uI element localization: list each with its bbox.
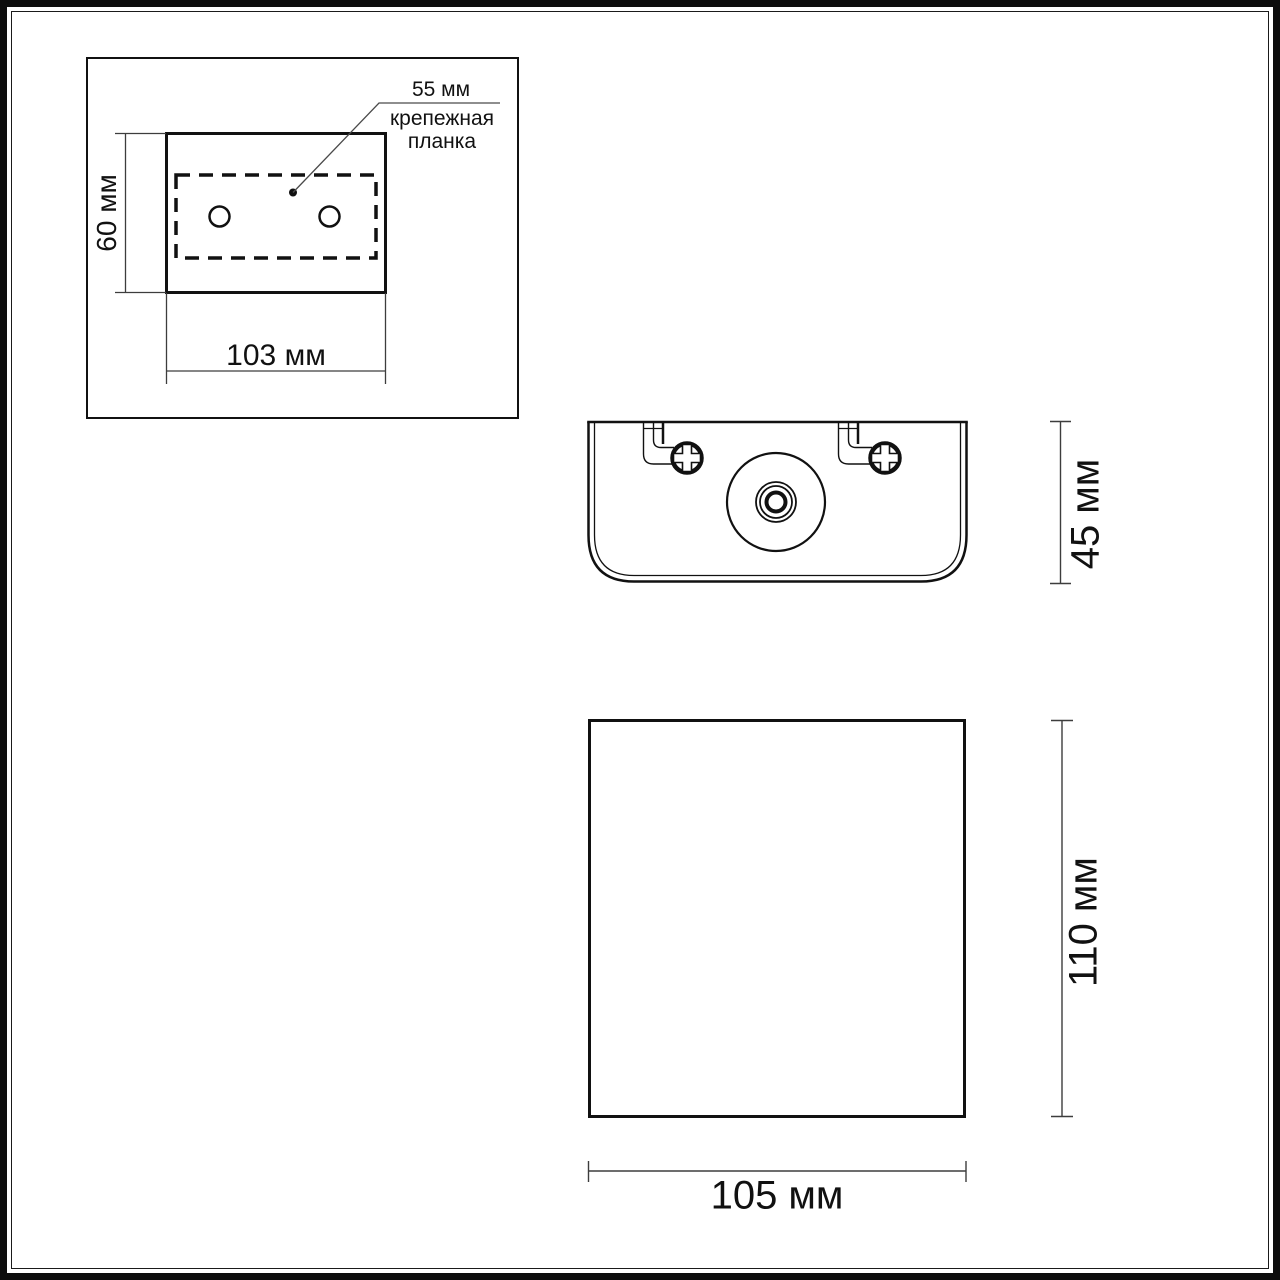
plate-callout-label: крепежная планка [379,107,505,153]
side-depth-label: 45 мм [1064,459,1109,570]
keyhole-slot-left [643,422,674,464]
phillips-screw-left-icon [673,444,702,473]
technical-drawing-canvas [0,0,1280,1280]
front-view-outline [590,721,965,1117]
bracket-inner [849,423,873,448]
plate-width-label: 55 мм [412,78,470,102]
rear-view-outline [167,134,386,293]
front-view-group [589,721,1074,1183]
top-view-group [587,422,1071,584]
spec-sheet-page: 55 мм крепежная планка 60 мм 103 мм 45 м… [0,0,1280,1280]
rear-width-label: 103 мм [226,339,326,373]
gland-outer [727,453,825,551]
keyhole-slot-right [838,422,872,464]
mounting-hole-right [320,207,340,227]
front-width-label: 105 мм [711,1174,844,1219]
cable-gland-icon [727,453,825,551]
front-height-label: 110 мм [1062,857,1107,987]
rear-height-label: 60 мм [91,174,123,251]
mounting-hole-left [210,207,230,227]
phillips-screw-right-icon [871,444,900,473]
